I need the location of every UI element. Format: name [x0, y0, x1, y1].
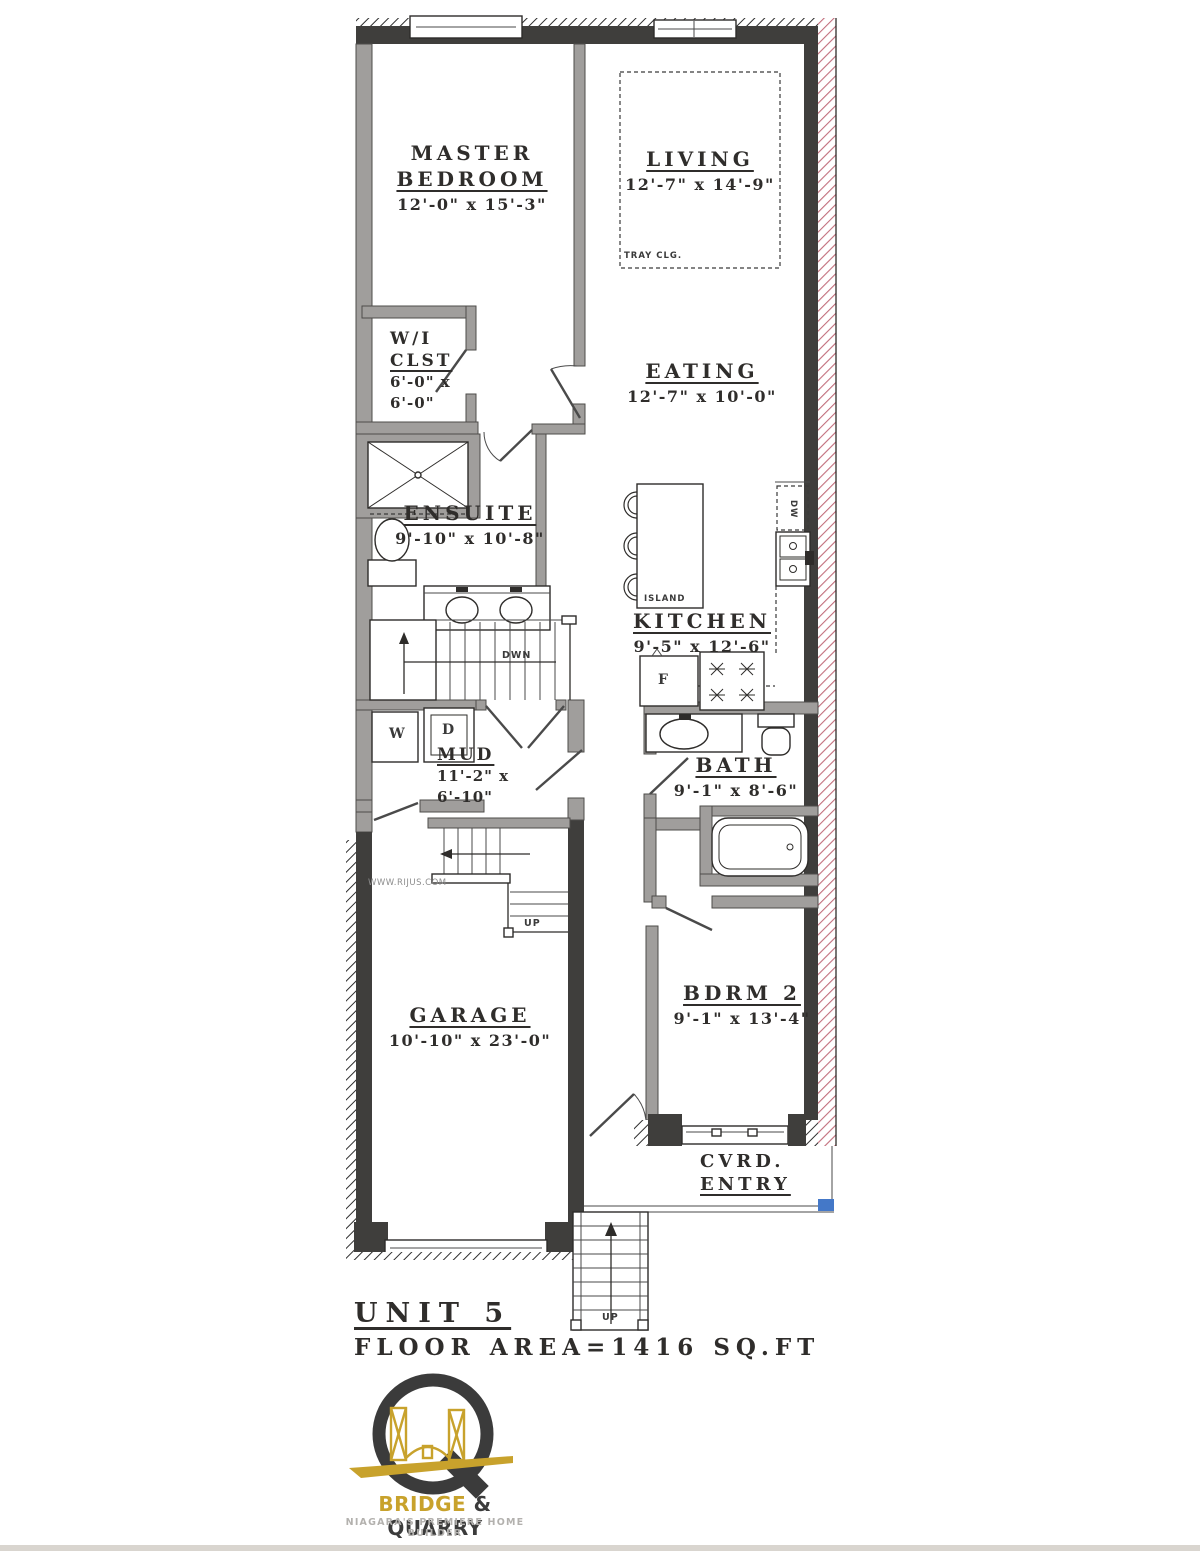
party-wall-hatch — [818, 18, 836, 1146]
logo-brand-amp: & — [466, 1492, 491, 1516]
room-name: MASTER — [352, 140, 592, 166]
room-name: ENSUITE — [360, 500, 580, 526]
room-name: BATH — [646, 752, 826, 778]
room-label-wi-clst: W/I CLST 6'-0" x 6'-0" — [390, 328, 510, 413]
dryer-label: D — [442, 722, 454, 738]
stair-dwn-note: DWN — [502, 650, 531, 661]
porch-up-note: UP — [602, 1312, 619, 1323]
room-dims: 9'-5" x 12'-6" — [592, 637, 812, 658]
room-dims: 12'-7" x 10'-0" — [592, 387, 812, 408]
room-name: BDRM 2 — [642, 980, 842, 1006]
room-name: MUD — [437, 744, 557, 766]
room-name: BEDROOM — [352, 166, 592, 192]
room-dims: 9'-1" x 8'-6" — [646, 781, 826, 802]
room-name: KITCHEN — [592, 608, 812, 634]
stair-up-note: UP — [524, 918, 541, 929]
room-dims: 12'-7" x 14'-9" — [600, 175, 800, 196]
room-name: W/I — [390, 328, 510, 350]
scan-edge-artifact — [0, 1545, 1200, 1551]
floor-plan-drawing — [0, 0, 1200, 1553]
room-label-ensuite: ENSUITE 9'-10" x 10'-8" — [360, 500, 580, 550]
room-label-garage: GARAGE 10'-10" x 23'-0" — [350, 1002, 590, 1052]
garage-door — [346, 1222, 582, 1260]
floor-area-title: FLOOR AREA=1416 SQ.FT — [354, 1334, 820, 1361]
room-name: GARAGE — [350, 1002, 590, 1028]
builder-logo — [345, 1372, 535, 1502]
room-dims: 9'-10" x 10'-8" — [360, 529, 580, 550]
room-name: EATING — [592, 358, 812, 384]
logo-bridge-deck — [349, 1456, 513, 1478]
dishwasher-label: DW — [788, 500, 798, 518]
room-dims: 12'-0" x 15'-3" — [352, 195, 592, 216]
floorplan-page: MASTER BEDROOM 12'-0" x 15'-3" LIVING 12… — [0, 0, 1200, 1553]
room-label-kitchen: KITCHEN 9'-5" x 12'-6" — [592, 608, 812, 658]
unit-title: UNIT 5 — [354, 1298, 511, 1329]
room-label-eating: EATING 12'-7" x 10'-0" — [592, 358, 812, 408]
logo-tagline: NIAGARA'S PREMIERE HOME BUILDER — [332, 1517, 538, 1539]
room-dims: 10'-10" x 23'-0" — [350, 1031, 590, 1052]
room-dims: 6'-0" x — [390, 373, 510, 393]
tray-ceiling-note: TRAY CLG. — [624, 251, 682, 261]
watermark: WWW.RIJUS.COM — [368, 878, 447, 888]
washer-label: W — [389, 726, 405, 742]
room-label-bath: BATH 9'-1" x 8'-6" — [646, 752, 826, 802]
room-dims: 6'-10" — [437, 788, 557, 808]
room-name: LIVING — [600, 146, 800, 172]
room-label-cvrd-entry: CVRD. ENTRY — [700, 1150, 791, 1197]
fridge-label: F — [658, 672, 668, 688]
room-name: ENTRY — [700, 1173, 791, 1196]
logo-brand-bridge: BRIDGE — [378, 1492, 466, 1516]
room-label-master-bedroom: MASTER BEDROOM 12'-0" x 15'-3" — [352, 140, 592, 216]
room-dims: 6'-0" — [390, 394, 510, 414]
room-label-living: LIVING 12'-7" x 14'-9" — [600, 146, 800, 196]
room-label-bdrm2: BDRM 2 9'-1" x 13'-4" — [642, 980, 842, 1030]
room-name: CVRD. — [700, 1150, 791, 1173]
room-dims: 9'-1" x 13'-4" — [642, 1009, 842, 1030]
island-note: ISLAND — [644, 594, 685, 604]
stairs-up-interior — [432, 828, 568, 937]
room-name: CLST — [390, 350, 510, 372]
porch-marker — [818, 1199, 834, 1211]
room-label-mud: MUD 11'-2" x 6'-10" — [437, 744, 557, 807]
room-dims: 11'-2" x — [437, 767, 557, 787]
